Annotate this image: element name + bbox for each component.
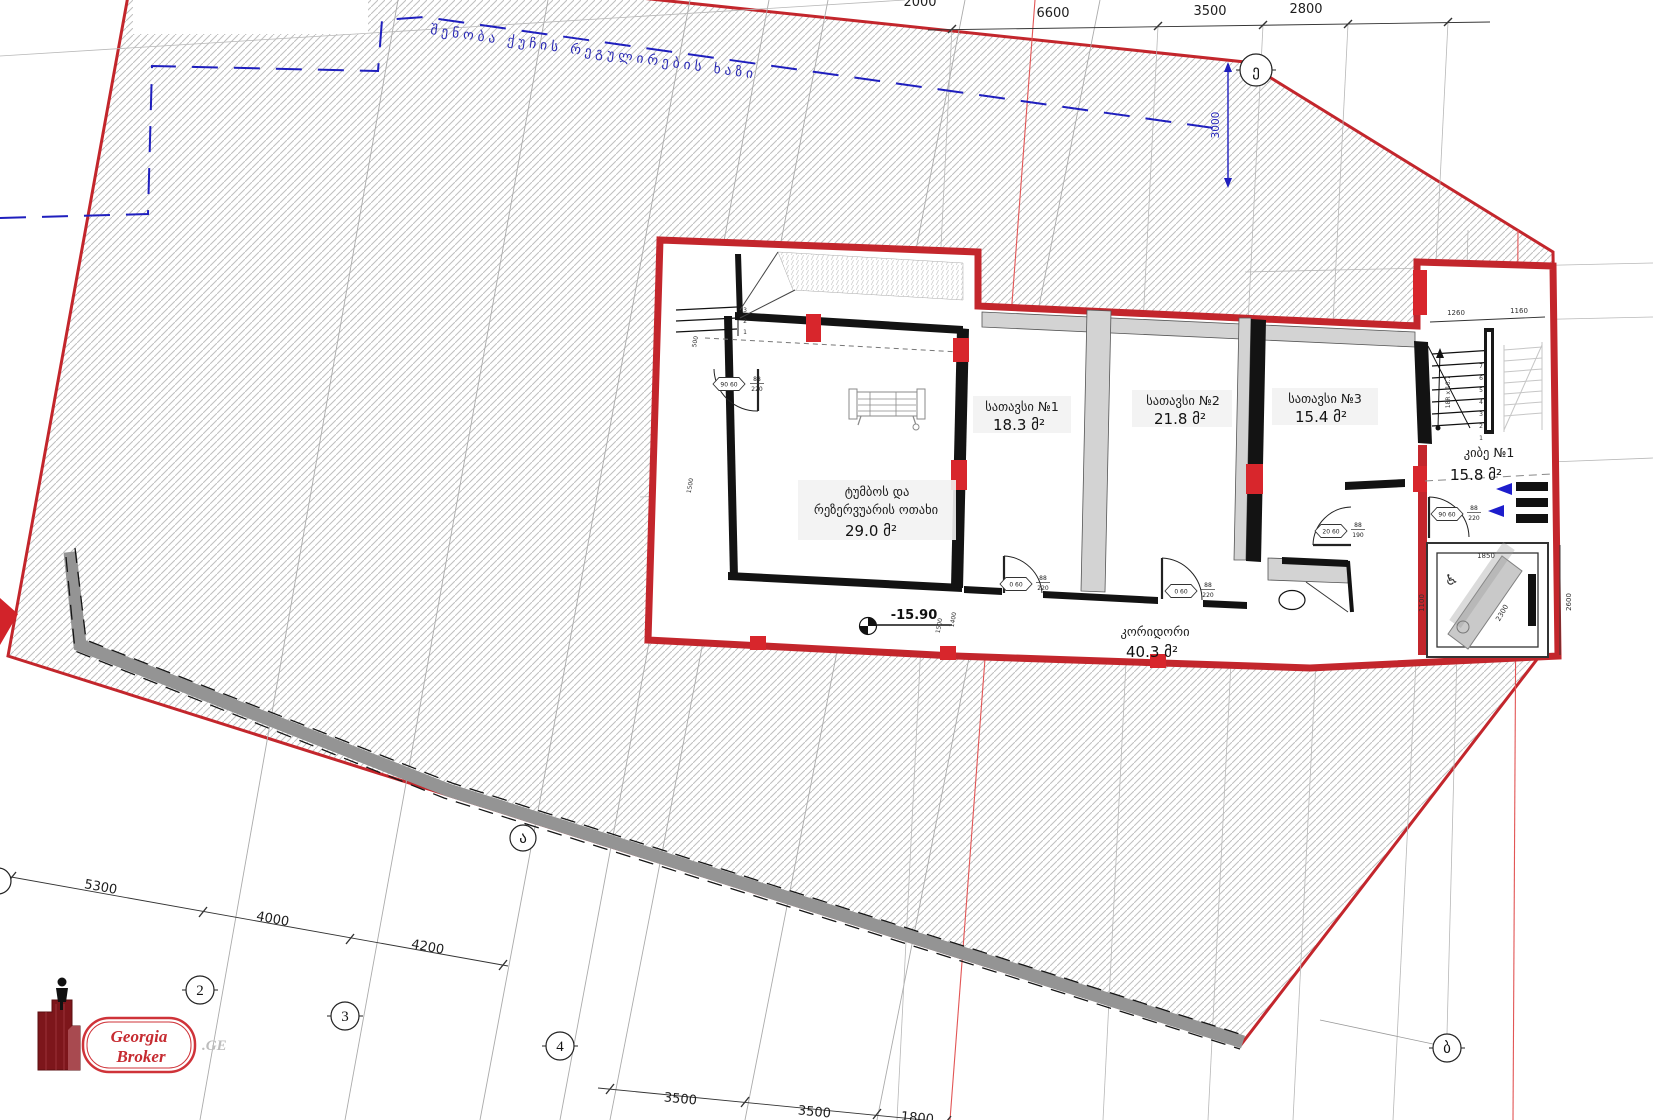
wall-patch-1: [953, 338, 969, 362]
entry-step-num-1: 1: [743, 329, 747, 336]
door-fraction-num: 88: [1354, 522, 1362, 529]
stair-step-num: 7: [1479, 363, 1483, 370]
elevator-dim-1100: 1100: [1418, 594, 1426, 612]
door-fraction-num: 88: [1039, 575, 1047, 582]
door-fraction-den: 190: [1352, 532, 1364, 539]
door-tag-label: 0 60: [1009, 582, 1023, 589]
room-area-pump: 29.0 მ²: [845, 522, 897, 540]
bubble-leader-line: [1320, 1020, 1433, 1044]
grid-bubble-label: ბ: [1443, 1041, 1451, 1057]
grid-bubble-1-partial: [0, 868, 11, 894]
door-fraction-den: 220: [751, 386, 763, 393]
dim-bottom-1800: 1800: [900, 1109, 934, 1120]
room-label-storage3: სათავსი №3: [1288, 391, 1362, 406]
wc-sink: [1279, 591, 1305, 610]
dim-tick: [346, 934, 354, 944]
door-fraction-den: 220: [1202, 592, 1214, 599]
stair-step-num: 4: [1479, 399, 1483, 406]
pump-tank-endplate-right: [917, 389, 925, 419]
elevator-counterweight: [1528, 574, 1536, 626]
stair-riser-note: 18R x 16.7: [1445, 376, 1452, 409]
entry-step-num-3: 3: [743, 307, 747, 314]
room-area-stair: 15.8 მ²: [1450, 466, 1502, 484]
pump-wheel: [913, 424, 919, 430]
grid-bubble-label: ა: [519, 831, 527, 847]
dim-left-5300: 5300: [83, 877, 118, 898]
door-fraction-den: 220: [1037, 585, 1049, 592]
door-fraction-num: 88: [1470, 505, 1478, 512]
stair-step-num: 2: [1479, 423, 1483, 430]
top-dim-line: [928, 22, 1490, 30]
dim-bottom-3500a: 3500: [663, 1090, 697, 1108]
grid-bubble-a: ა: [510, 825, 536, 851]
wall-patch-6: [750, 636, 766, 650]
grid-bubble-4: 4: [542, 1032, 578, 1060]
room-label-storage1: სათავსი №1: [985, 399, 1059, 414]
wall-patch-5: [806, 314, 821, 342]
dim-top-3500: 3500: [1193, 4, 1226, 19]
elevator-dim-1850: 1850: [1477, 552, 1495, 560]
door-tag-label: 0 60: [1174, 589, 1188, 596]
wall-patch-7: [940, 646, 956, 660]
dim-left-4000: 4000: [255, 909, 290, 930]
pump-tank-endplate-left: [849, 389, 857, 419]
stair-step-num: 3: [1479, 411, 1483, 418]
grid-bubble-label: 3: [341, 1009, 349, 1025]
exit-step-bar: [1516, 498, 1548, 507]
wall-patch-stairtop: [1413, 270, 1427, 315]
logo-text-broker: Broker: [115, 1047, 166, 1066]
door-fraction-num: 88: [753, 376, 761, 383]
dim-bottom-3500b: 3500: [797, 1103, 831, 1120]
room-label-storage2: სათავსი №2: [1146, 393, 1220, 408]
elevation-value: -15.90: [891, 608, 938, 623]
grid-bubble-label: 2: [196, 983, 204, 999]
room-label-pump-line1: ტუმბოს და: [845, 484, 910, 499]
dim-top-2800: 2800: [1289, 2, 1322, 17]
stair-step-num: 5: [1479, 387, 1483, 394]
room-area-corridor: 40.3 მ²: [1126, 643, 1178, 661]
door-fraction-num: 88: [1204, 582, 1212, 589]
door-fraction-den: 220: [1468, 515, 1480, 522]
elevator-dim-2600: 2600: [1565, 593, 1573, 611]
room-label-corridor: კორიდორი: [1120, 624, 1189, 639]
floor-plan-sheet: 1 2 3: [0, 0, 1653, 1120]
dim-tick: [873, 1109, 881, 1119]
room-area-storage3: 15.4 მ²: [1295, 408, 1347, 426]
stair-step-num: 1: [1479, 435, 1483, 442]
exit-step-bar: [1516, 482, 1548, 491]
exit-step-bar: [1516, 514, 1548, 523]
room-area-storage1: 18.3 მ²: [993, 416, 1045, 434]
parcel-top-notch: [133, 0, 368, 34]
entry-step-num-2: 2: [743, 318, 747, 325]
stair-step-num: 6: [1479, 375, 1483, 382]
door-tag-label: 90 60: [1438, 512, 1455, 519]
offset-dim-3000: 3000: [1210, 112, 1222, 139]
wall-patch-3: [1246, 464, 1263, 494]
logo-text-ge: .GE: [202, 1038, 227, 1054]
dim-top-6600: 6600: [1036, 6, 1069, 21]
grid-bubble-2: 2: [182, 976, 218, 1004]
room-label-pump-line2: რეზერვუარის ოთახი: [814, 502, 938, 517]
door-tag-label: 20 60: [1322, 529, 1339, 536]
dim-left-4200: 4200: [410, 937, 445, 958]
grid-bubble-b: ბ: [1320, 1020, 1465, 1062]
floor-plan-drawing: 1 2 3: [0, 0, 1653, 1120]
pump-tank-body: [856, 392, 918, 416]
stair-rail-slot: [1487, 332, 1491, 430]
room-area-storage2: 21.8 მ²: [1154, 410, 1206, 428]
grid-bubble-label: ე: [1252, 64, 1260, 80]
logo-text-georgia: Georgia: [111, 1027, 168, 1046]
door-tag-label: 90 60: [720, 382, 737, 389]
wall-patch-4: [1413, 466, 1427, 492]
stair-dim-1160: 1160: [1510, 307, 1528, 315]
logo-person-icon: [58, 978, 67, 987]
logo-tower-highlight: [68, 1026, 80, 1070]
grid-bubble-3: 3: [327, 1002, 363, 1030]
grid-bubble-label: 4: [556, 1039, 564, 1055]
dim-top-2000: 2000: [903, 0, 936, 10]
room-label-stair: კიბე №1: [1464, 445, 1515, 460]
stair-dim-1260: 1260: [1447, 309, 1465, 317]
